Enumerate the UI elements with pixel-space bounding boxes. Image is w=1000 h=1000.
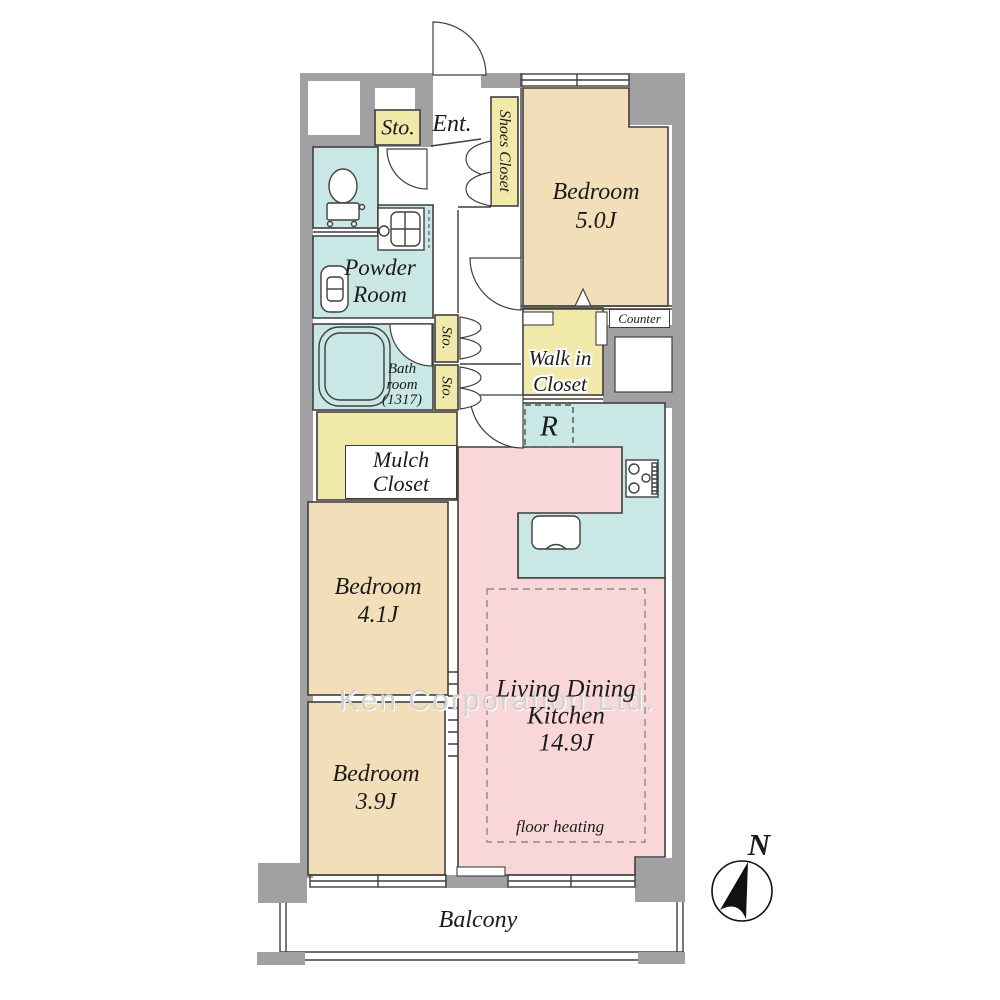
wall-right	[672, 125, 685, 858]
label-bedroom-39j: Bedroom 3.9J	[332, 760, 419, 816]
wall-bottom-right-block	[635, 858, 685, 902]
balcony-corner-left	[257, 952, 305, 965]
stove-icon	[626, 460, 658, 497]
wall-bottom-left-block	[258, 863, 307, 903]
window-ldk-bottom-lines	[508, 875, 635, 887]
label-compass-north: N	[748, 827, 770, 863]
toilet-door-arc	[387, 149, 427, 189]
pipe-space	[615, 337, 672, 392]
label-balcony: Balcony	[439, 907, 518, 935]
label-bedroom-41j: Bedroom 4.1J	[334, 573, 421, 629]
storage-upper-door-2	[460, 338, 481, 359]
window-bedroom-bottom-lines	[310, 875, 446, 887]
window-bedroom-top-lines	[521, 74, 629, 86]
label-storage-upper: Sto.	[437, 327, 454, 350]
label-floor-heating: floor heating	[516, 817, 604, 837]
entrance-door-arc	[433, 22, 486, 75]
wic-shelf	[523, 312, 553, 325]
storage-upper-door-1	[460, 317, 481, 338]
label-storage-lower: Sto.	[437, 377, 454, 400]
bedroom1-door-arc	[470, 258, 521, 310]
label-walk-in-closet: Walk in Closet	[529, 345, 592, 397]
counter-support	[596, 312, 607, 345]
wall-top-center-stub	[481, 73, 523, 88]
kitchen-sink-icon	[532, 516, 580, 549]
entrance-step-line	[431, 139, 481, 146]
balcony-corner-right	[638, 952, 685, 964]
label-bath-room: Bath room (1317)	[382, 362, 422, 409]
wall-bottom-center-stub	[445, 875, 508, 888]
compass-icon	[712, 861, 772, 921]
shoes-closet-door-lower	[466, 172, 491, 206]
wall-recess-2	[375, 88, 415, 110]
wall-top-right-block	[629, 73, 685, 125]
label-storage-top: Sto.	[381, 114, 415, 139]
washing-machine-icon	[378, 208, 424, 250]
label-counter: Counter	[609, 309, 670, 328]
label-powder-room: Powder Room	[344, 254, 416, 308]
label-ldk: Living Dining Kitchen 14.9J	[496, 676, 636, 757]
balcony-step	[457, 867, 505, 876]
wall-recess-1	[308, 81, 360, 135]
label-refrigerator: R	[540, 410, 558, 443]
label-bedroom-5j: Bedroom 5.0J	[552, 178, 639, 236]
label-entrance: Ent.	[432, 111, 471, 139]
shoes-closet-door-upper	[466, 141, 491, 177]
label-shoes-closet: Shoes Closet	[495, 110, 513, 192]
label-mulch-closet: Mulch Closet	[345, 445, 457, 499]
storage-lower-door-1	[460, 367, 481, 388]
floor-plan-page: Ken Corporation Ltd. Sto. Ent. Shoes Clo…	[0, 0, 1000, 1000]
